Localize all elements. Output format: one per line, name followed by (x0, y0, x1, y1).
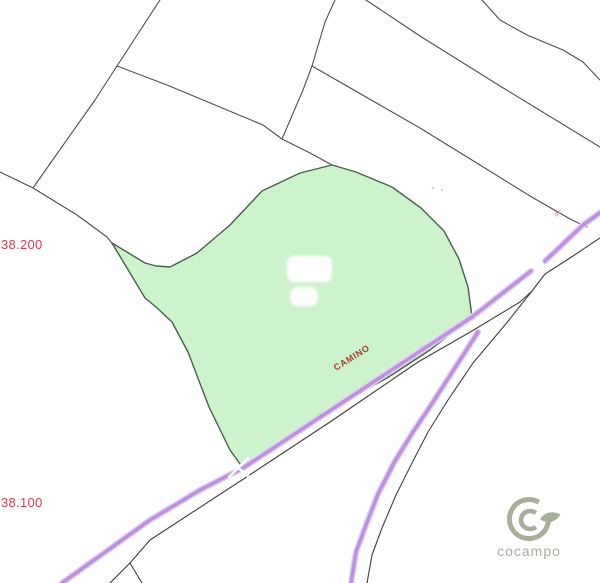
boundary-line (482, 0, 600, 80)
boundary-line (282, 0, 335, 139)
logo-wordmark: cocampo (497, 543, 561, 559)
building-footprint (287, 256, 332, 282)
logo-inner-ring (521, 511, 536, 529)
logo-leaf-icon (540, 512, 561, 522)
grid-coordinate-label-38200: 38.200 (1, 237, 43, 252)
building-footprint (290, 287, 318, 306)
map-viewport[interactable]: 38.200 38.100 CAMINO dc cocampo (0, 0, 600, 583)
cocampo-logo: cocampo (497, 500, 561, 559)
grid-coordinate-label-38100: 38.100 (1, 495, 43, 510)
faint-terrain-mark (432, 187, 444, 192)
cadastral-map-canvas[interactable]: 38.200 38.100 CAMINO dc cocampo (0, 0, 600, 583)
boundary-line (33, 66, 117, 188)
track-casing (130, 563, 142, 583)
boundary-line (366, 0, 600, 147)
boundary-line (0, 172, 115, 247)
boundary-line (117, 0, 160, 66)
boundary-line (117, 66, 332, 165)
